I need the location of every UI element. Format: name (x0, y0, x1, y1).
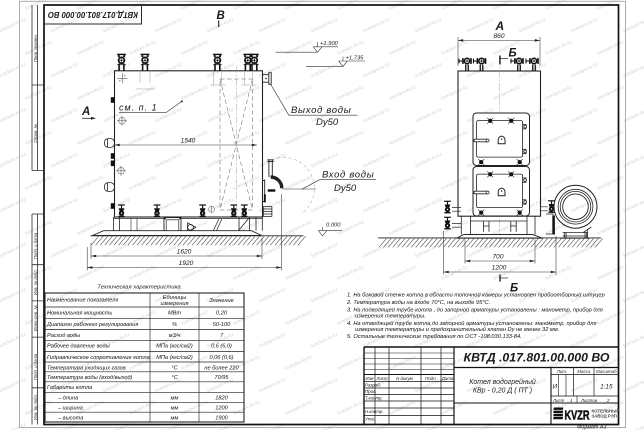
svg-text:Масштаб: Масштаб (596, 369, 617, 374)
svg-text:Т.контр.: Т.контр. (365, 396, 383, 401)
svg-text:Инв. № дубл.: Инв. № дубл. (33, 269, 38, 295)
svg-text:Изм: Изм (365, 376, 373, 381)
svg-text:Габариты котла: Габариты котла (47, 385, 92, 391)
svg-text:1540: 1540 (181, 137, 196, 144)
svg-text:Дата: Дата (441, 376, 454, 381)
svg-text:КОТЕЛЬНЫЙ: КОТЕЛЬНЫЙ (592, 408, 620, 413)
svg-text:не более 220: не более 220 (204, 365, 239, 371)
svg-text:4. На отводящей трубе котла,д: 4. На отводящей трубе котла,до запорной … (347, 320, 597, 327)
svg-text:1920: 1920 (179, 260, 194, 267)
svg-text:КВТД .017.801.00.000 ВО: КВТД .017.801.00.000 ВО (464, 351, 611, 365)
svg-text:2. Температура воды на входе: 2. Температура воды на входе 70°С, на вы… (346, 300, 490, 306)
svg-text:Dy50: Dy50 (316, 117, 339, 128)
svg-text:Разраб.: Разраб. (365, 383, 381, 388)
svg-text:см. п. 1: см. п. 1 (119, 103, 158, 113)
svg-text:Утв.: Утв. (365, 417, 375, 422)
svg-text:1820: 1820 (215, 396, 228, 402)
svg-text:Рабочее давление воды: Рабочее давление воды (47, 344, 110, 350)
svg-text:1:15: 1:15 (600, 384, 613, 391)
svg-text:KVZR: KVZR (565, 407, 590, 422)
svg-text:мм: мм (171, 416, 179, 422)
svg-text:Лист: Лист (375, 376, 388, 381)
svg-text:измерения: измерения (161, 301, 189, 307)
svg-text:5. Остальные технические треб: 5. Остальные технические требования по О… (347, 334, 522, 340)
svg-text:И: И (553, 384, 558, 391)
svg-text:Подп.: Подп. (425, 376, 437, 381)
svg-text:1900: 1900 (215, 416, 228, 422)
svg-text:измерения температуры.: измерения температуры. (355, 314, 426, 320)
svg-text:+1.900: +1.900 (320, 41, 339, 47)
svg-text:КВТД.017.801.00.000 ВО: КВТД.017.801.00.000 ВО (47, 10, 138, 19)
svg-text:Подп. и дата: Подп. и дата (33, 232, 38, 259)
svg-text:1620: 1620 (177, 248, 192, 255)
svg-text:Взам. инв. №: Взам. инв. № (33, 305, 38, 331)
svg-text:измерения температуры и предох: измерения температуры и предохранительны… (355, 326, 559, 333)
svg-text:Инв. № подл.: Инв. № подл. (33, 394, 38, 420)
svg-text:– высота: – высота (57, 416, 83, 422)
svg-text:ЗАВОД РЭП: ЗАВОД РЭП (592, 414, 617, 419)
svg-text:МПа (кгс/см2): МПа (кгс/см2) (156, 355, 193, 361)
svg-text:Лит.: Лит. (556, 369, 567, 374)
svg-text:м3/ч: м3/ч (169, 333, 180, 339)
svg-text:Формат А3: Формат А3 (577, 425, 607, 430)
svg-text:МПа (кгс/см2): МПа (кгс/см2) (156, 344, 193, 350)
svg-text:°С: °С (171, 375, 178, 381)
svg-text:мм: мм (171, 406, 179, 412)
svg-text:Пров.: Пров. (365, 389, 377, 394)
svg-text:+1.735: +1.735 (346, 56, 365, 62)
svg-text:МВт: МВт (168, 310, 181, 316)
svg-text:– длина: – длина (57, 396, 78, 402)
svg-text:Подп. и дата: Подп. и дата (33, 353, 38, 380)
svg-text:1. На боковой стенке котла в: 1. На боковой стенке котла в области топ… (347, 292, 605, 299)
svg-text:700: 700 (492, 253, 503, 260)
svg-text:0.000: 0.000 (326, 223, 341, 229)
svg-text:2: 2 (606, 398, 610, 403)
svg-text:Б: Б (509, 48, 517, 60)
svg-text:0,6 (6,0): 0,6 (6,0) (211, 344, 232, 350)
svg-text:Диапазон рабочего регулировани: Диапазон рабочего регулирования (46, 322, 138, 328)
svg-text:Справ. №: Справ. № (33, 124, 38, 143)
svg-text:В: В (217, 10, 225, 22)
svg-text:70/95: 70/95 (215, 375, 230, 381)
svg-text:А: А (495, 19, 505, 33)
svg-text:1200: 1200 (215, 406, 228, 412)
svg-text:Значение: Значение (209, 298, 234, 304)
svg-text:50-100: 50-100 (213, 322, 231, 328)
svg-text:0,20: 0,20 (216, 310, 228, 316)
svg-text:1200: 1200 (492, 264, 507, 271)
svg-text:Расход воды: Расход воды (47, 333, 80, 339)
svg-text:мм: мм (171, 396, 179, 402)
svg-text:Перв. примен.: Перв. примен. (33, 34, 38, 62)
svg-text:Лист: Лист (552, 398, 565, 403)
svg-text:Масса: Масса (577, 369, 591, 374)
svg-text:Вход воды: Вход воды (322, 170, 374, 181)
svg-text:3. На подводящей трубе котла: 3. На подводящей трубе котла , до запорн… (347, 307, 603, 314)
svg-text:А: А (81, 106, 90, 118)
svg-text:Температура воды (вход/выход): Температура воды (вход/выход) (47, 375, 133, 381)
svg-text:– ширина: – ширина (57, 406, 83, 412)
svg-text:N докум.: N докум. (396, 376, 414, 381)
svg-text:Выход воды: Выход воды (291, 105, 351, 116)
svg-text:°С: °С (171, 365, 178, 371)
svg-text:Гидравлическое сопротивление к: Гидравлическое сопротивление котла (47, 355, 150, 361)
svg-text:Котел водогрейный: Котел водогрейный (469, 378, 536, 386)
svg-text:Номинальная мощность: Номинальная мощность (47, 310, 112, 316)
svg-text:Техническая характеристика: Техническая характеристика (97, 285, 181, 291)
svg-text:0,06 (0,6): 0,06 (0,6) (210, 355, 234, 361)
svg-text:Наименование показателя: Наименование показателя (47, 298, 118, 304)
svg-text:КВр - 0,20 Д ( ПТ ): КВр - 0,20 Д ( ПТ ) (473, 388, 532, 395)
svg-text:Н.контр.: Н.контр. (365, 409, 384, 414)
svg-text:%: % (172, 322, 177, 328)
svg-text:Температура уходящих газов: Температура уходящих газов (47, 365, 126, 371)
svg-text:860: 860 (493, 33, 504, 40)
svg-text:Dy50: Dy50 (334, 183, 357, 194)
svg-text:Листов: Листов (580, 398, 598, 403)
